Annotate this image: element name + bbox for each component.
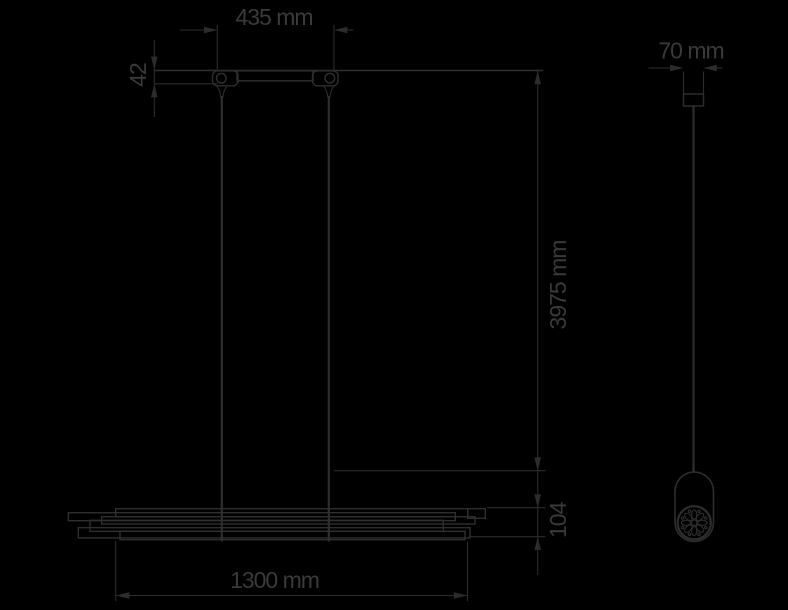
rosette-dot — [688, 533, 691, 536]
dim-body-height: 104 — [470, 494, 571, 550]
dim-canopy-height: 42 — [125, 40, 218, 117]
dimension-drawing-canvas: 435 mm 42 3975 mm 104 1300 mm — [0, 0, 788, 610]
cable-flare-left — [217, 86, 227, 97]
dim-canopy-width: 435 mm — [180, 4, 354, 70]
cable-flare-right — [324, 86, 334, 97]
rosette-dot — [681, 516, 684, 519]
dim-body-width: 1300 mm — [116, 542, 468, 602]
arrowhead-left-icon — [334, 27, 347, 33]
rosette-dot — [704, 526, 707, 529]
side-canopy — [684, 94, 704, 106]
gripper-screw-right-icon — [325, 73, 335, 83]
pendant-lamp-dimension-drawing: 435 mm 42 3975 mm 104 1300 mm — [0, 0, 788, 610]
rosette-dot — [697, 510, 700, 513]
dim-body-height-label: 104 — [545, 501, 571, 538]
dim-canopy-width-label: 435 mm — [235, 4, 312, 30]
dim-suspension-length: 3975 mm — [334, 71, 571, 576]
dim-suspension-length-label: 3975 mm — [545, 241, 571, 330]
rosette-dot — [704, 516, 707, 519]
arrowhead-left-icon — [116, 592, 130, 599]
lamp-body — [68, 509, 485, 540]
body-slat — [78, 528, 470, 538]
arrowhead-left-icon — [704, 65, 717, 71]
arrowhead-down-icon — [534, 494, 541, 507]
canopy-bar — [237, 71, 313, 81]
arrowhead-up-icon — [534, 71, 541, 84]
dim-canopy-height-label: 42 — [125, 63, 151, 87]
rosette-center — [691, 520, 697, 526]
arrowhead-up-icon — [151, 84, 158, 97]
rosette-dot — [681, 526, 684, 529]
suspension-cables — [222, 96, 329, 542]
dim-body-width-label: 1300 mm — [230, 567, 319, 593]
rosette-petals — [681, 510, 707, 536]
arrowhead-down-icon — [151, 57, 158, 70]
rosette-dot — [697, 533, 700, 536]
dim-side-width: 70 mm — [649, 38, 724, 94]
rosette-dot — [688, 510, 691, 513]
arrowhead-right-icon — [454, 592, 468, 599]
body-slat — [90, 520, 443, 531]
arrowhead-down-icon — [534, 457, 541, 470]
gripper-screw-left-icon — [217, 73, 227, 83]
arrowhead-right-icon — [204, 27, 217, 33]
end-cap-ring — [678, 506, 711, 539]
canopy — [213, 71, 339, 97]
arrowhead-up-icon — [534, 537, 541, 550]
dim-side-width-label: 70 mm — [658, 38, 723, 64]
end-cap-rosette — [678, 506, 711, 539]
side-view — [675, 94, 714, 542]
arrowhead-right-icon — [670, 65, 683, 71]
